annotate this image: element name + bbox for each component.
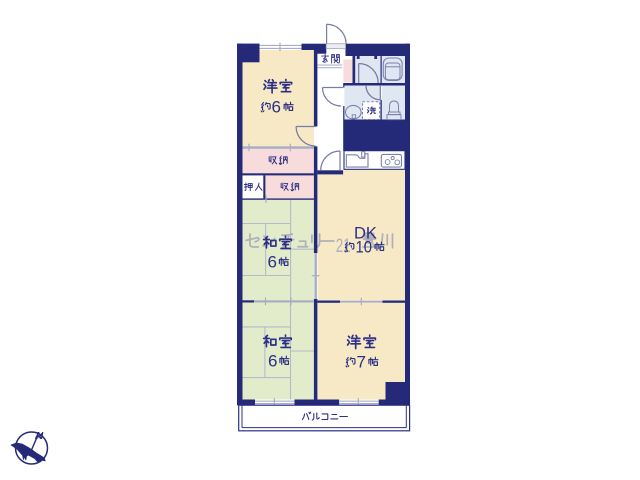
svg-text:21: 21 [336,235,351,257]
svg-text:7: 7 [357,353,366,372]
svg-text:10: 10 [356,238,373,257]
svg-text:6: 6 [268,253,277,272]
svg-text:6: 6 [268,352,277,371]
svg-text:6: 6 [272,98,281,117]
